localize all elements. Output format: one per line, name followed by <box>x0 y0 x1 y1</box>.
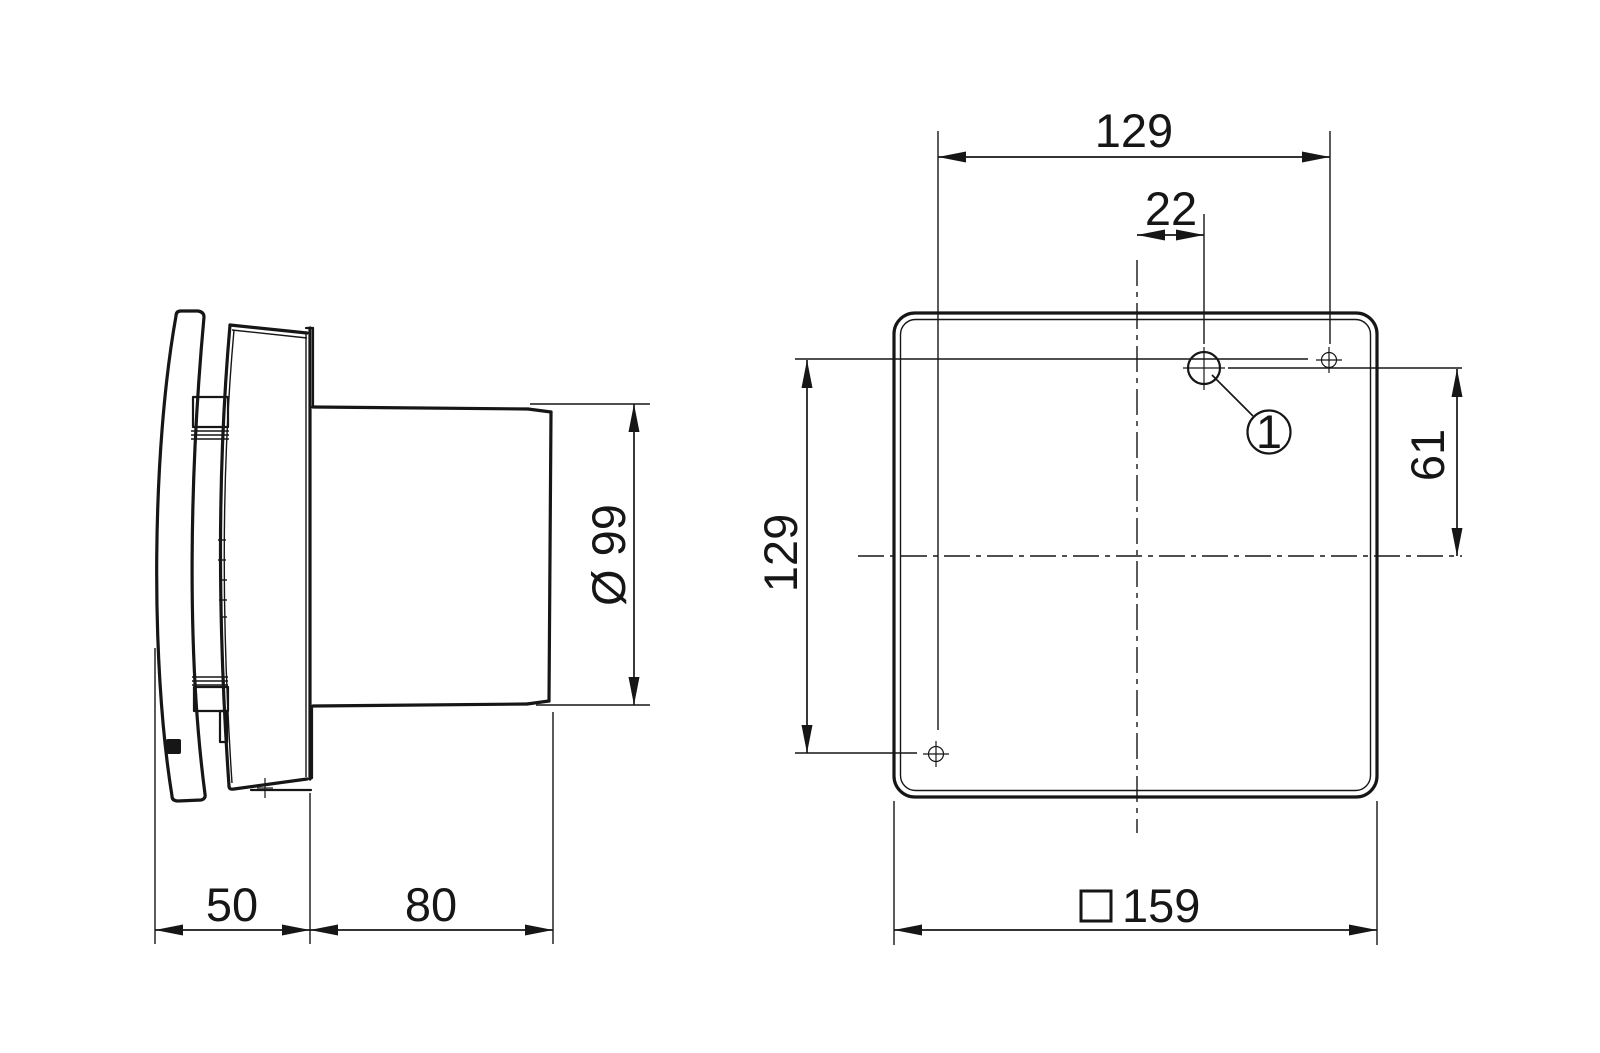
dim-80-label: 80 <box>405 878 457 931</box>
cable-entry-hole <box>1183 347 1225 390</box>
dim-61-label: 61 <box>1401 429 1454 481</box>
side-view <box>157 311 551 801</box>
dim-159-label: 159 <box>1122 879 1200 932</box>
front-cover-outline <box>157 311 205 801</box>
duct <box>313 407 551 706</box>
technical-drawing-page: 50 80 Ø 99 <box>0 0 1600 1053</box>
dim-22-label: 22 <box>1145 182 1197 235</box>
dim-129-left-label: 129 <box>754 514 807 592</box>
dimension-depth-50: 50 <box>155 648 310 944</box>
mounting-plate-edge <box>306 328 313 779</box>
plate-outer-edge <box>894 313 1377 797</box>
plate-inner-edge <box>901 320 1371 791</box>
square-symbol <box>1081 891 1111 921</box>
dim-50-label: 50 <box>206 878 258 931</box>
callout-1: 1 <box>1212 375 1291 458</box>
dimension-depth-80: 80 <box>310 712 553 944</box>
dim-diameter-label: Ø 99 <box>582 504 635 606</box>
cover-latch <box>166 739 181 754</box>
fan-dimension-drawing: 50 80 Ø 99 <box>0 0 1600 1053</box>
front-view: 1 <box>795 260 1462 833</box>
dimension-plate-size-159: 159 <box>894 801 1377 945</box>
callout-number: 1 <box>1256 405 1282 458</box>
dimension-cable-height-61: 61 <box>1401 369 1463 556</box>
screw-hole-bottom-left <box>923 741 949 767</box>
body-panel <box>218 325 311 798</box>
dim-129-top-label: 129 <box>1095 104 1173 157</box>
screw-hole-top-right <box>1316 347 1342 373</box>
